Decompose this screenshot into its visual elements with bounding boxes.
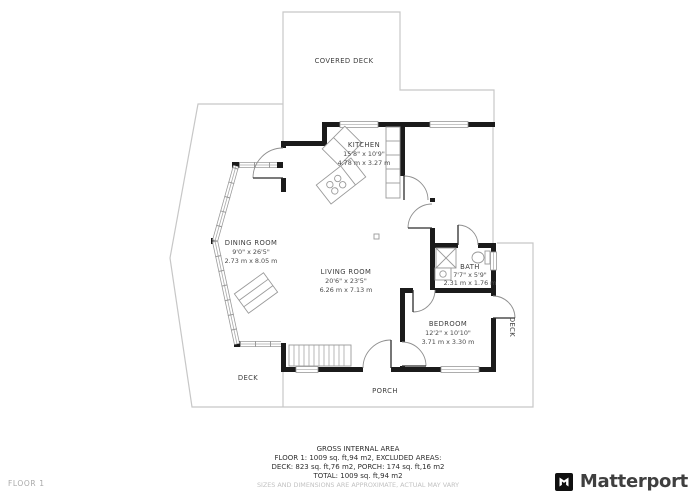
svg-text:SIZES AND DIMENSIONS ARE APPRO: SIZES AND DIMENSIONS ARE APPROXIMATE, AC…	[257, 481, 459, 489]
svg-text:DECK: 823 sq. ft,76 m2, PORCH:: DECK: 823 sq. ft,76 m2, PORCH: 174 sq. f…	[272, 463, 445, 471]
dining-table	[234, 273, 277, 314]
svg-text:4.78 m x 3.27 m: 4.78 m x 3.27 m	[338, 159, 391, 167]
room-label-bedroom: BEDROOM 12'2" x 10'10" 3.71 m x 3.30 m	[422, 320, 475, 346]
room-label-deck-left: DECK	[238, 374, 258, 382]
room-label-porch: PORCH	[372, 387, 398, 395]
svg-text:BEDROOM: BEDROOM	[429, 320, 467, 328]
matterport-branding: Matterport	[555, 471, 688, 492]
svg-text:BATH: BATH	[460, 263, 480, 271]
svg-text:PORCH: PORCH	[372, 387, 398, 395]
svg-text:20'6" x 23'5": 20'6" x 23'5"	[325, 277, 367, 285]
svg-text:DINING ROOM: DINING ROOM	[225, 239, 278, 247]
svg-text:2.31 m x 1.76 m: 2.31 m x 1.76 m	[444, 279, 497, 287]
floor-plan: COVERED DECK KITCHEN 15'8" x 10'9" 4.78 …	[0, 0, 700, 500]
svg-text:KITCHEN: KITCHEN	[348, 141, 380, 149]
floor-label: FLOOR 1	[8, 479, 45, 488]
room-label-deck-right: DECK	[508, 317, 516, 337]
svg-text:15'8" x 10'9": 15'8" x 10'9"	[343, 150, 385, 158]
svg-text:DECK: DECK	[508, 317, 516, 337]
matterport-wordmark: Matterport	[580, 471, 688, 492]
room-label-living-room: LIVING ROOM 20'6" x 23'5" 6.26 m x 7.13 …	[320, 268, 373, 294]
svg-text:2.73 m x 8.05 m: 2.73 m x 8.05 m	[225, 257, 278, 265]
svg-text:DECK: DECK	[238, 374, 258, 382]
area-summary: GROSS INTERNAL AREA FLOOR 1: 1009 sq. ft…	[257, 445, 459, 489]
svg-text:LIVING ROOM: LIVING ROOM	[321, 268, 372, 276]
svg-text:12'2" x 10'10": 12'2" x 10'10"	[425, 329, 471, 337]
svg-text:3.71 m x 3.30 m: 3.71 m x 3.30 m	[422, 338, 475, 346]
svg-text:TOTAL: 1009 sq. ft,94 m2: TOTAL: 1009 sq. ft,94 m2	[312, 472, 402, 480]
svg-text:7'7" x 5'9": 7'7" x 5'9"	[453, 271, 487, 279]
svg-text:FLOOR 1: 1009 sq. ft,94 m2, EX: FLOOR 1: 1009 sq. ft,94 m2, EXCLUDED ARE…	[275, 454, 442, 462]
svg-text:9'0" x 26'5": 9'0" x 26'5"	[232, 248, 270, 256]
room-label-covered-deck: COVERED DECK	[315, 57, 374, 65]
matterport-logo-icon	[555, 473, 573, 491]
svg-text:COVERED DECK: COVERED DECK	[315, 57, 374, 65]
floor-register	[374, 234, 379, 239]
stairs	[289, 345, 351, 366]
floor-plan-canvas: COVERED DECK KITCHEN 15'8" x 10'9" 4.78 …	[0, 0, 700, 500]
shower	[436, 248, 456, 268]
svg-text:GROSS INTERNAL AREA: GROSS INTERNAL AREA	[317, 445, 400, 453]
svg-text:6.26 m x 7.13 m: 6.26 m x 7.13 m	[320, 286, 373, 294]
room-label-dining-room: DINING ROOM 9'0" x 26'5" 2.73 m x 8.05 m	[225, 239, 278, 265]
